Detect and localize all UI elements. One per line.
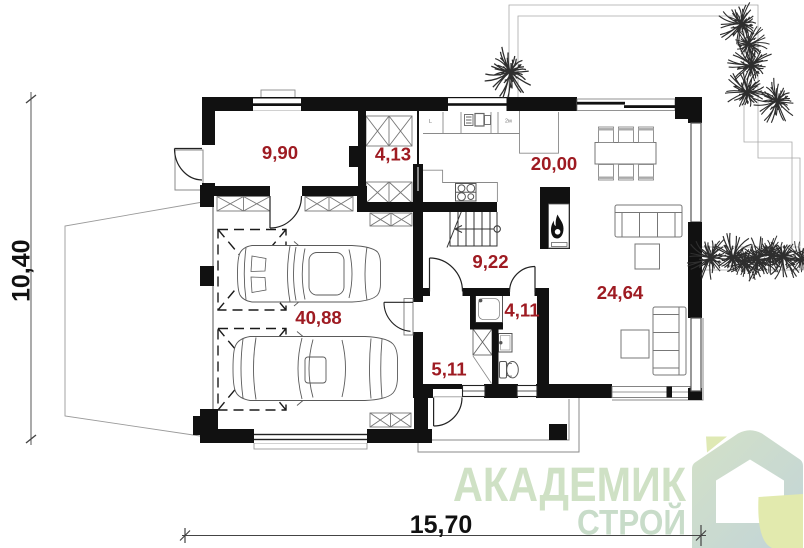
svg-text:9,22: 9,22 <box>472 251 508 272</box>
svg-text:9,90: 9,90 <box>262 142 298 163</box>
svg-text:4,11: 4,11 <box>504 300 539 321</box>
svg-text:5,11: 5,11 <box>431 359 466 380</box>
svg-text:L: L <box>429 119 432 125</box>
svg-text:15,70: 15,70 <box>410 511 473 539</box>
svg-text:24,64: 24,64 <box>597 282 644 303</box>
svg-text:2м: 2м <box>505 119 512 125</box>
svg-text:20,00: 20,00 <box>531 153 578 174</box>
svg-text:40,88: 40,88 <box>295 307 342 328</box>
svg-text:10,40: 10,40 <box>8 239 36 302</box>
svg-text:4,13: 4,13 <box>375 144 411 165</box>
svg-text:СТРОЙ: СТРОЙ <box>577 503 686 543</box>
